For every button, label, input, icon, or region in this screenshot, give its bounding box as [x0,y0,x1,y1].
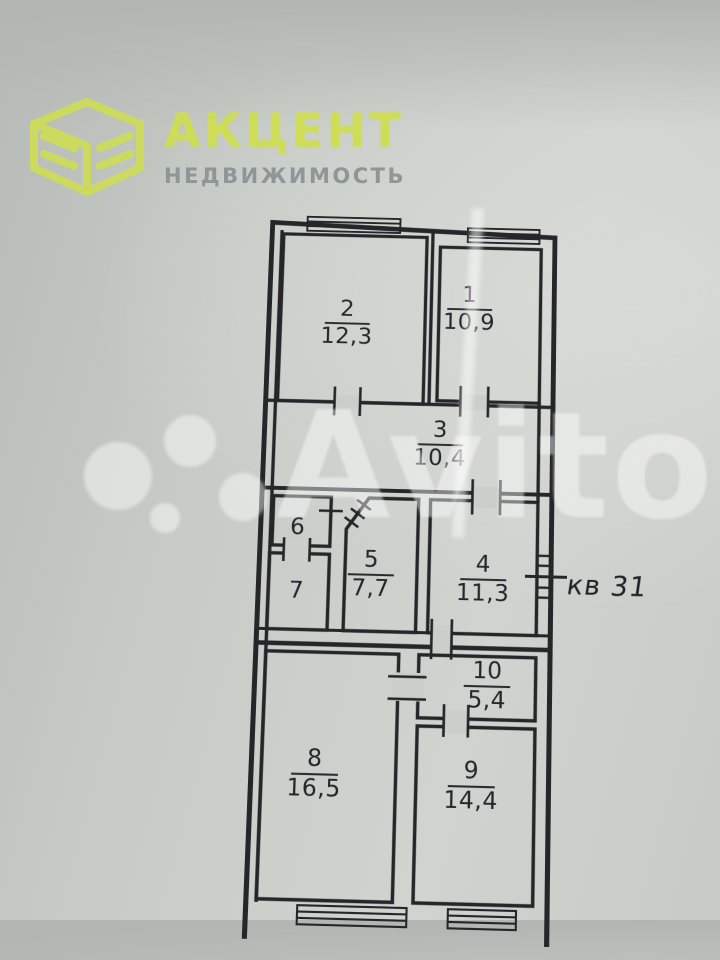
room-label-4: 4 11,3 [456,553,510,607]
room-label-8: 8 16,5 [286,747,342,803]
watermark-dot [84,442,152,510]
agency-name: АКЦЕНТ [164,108,406,155]
room-label-7: 7 [288,579,304,603]
scanned-floorplan-photo: АКЦЕНТ НЕДВИЖИМОСТЬ [0,0,720,920]
room-label-6: 6 [290,516,305,540]
agency-cube-icon [16,94,158,198]
apartment-number-label: кв 31 [565,570,650,603]
room-label-5: 5 7,7 [347,548,395,602]
watermark-dot [150,503,180,533]
agency-logo: АКЦЕНТ НЕДВИЖИМОСТЬ [16,94,406,198]
room-label-10: 10 5,4 [463,660,510,715]
agency-subtitle: НЕДВИЖИМОСТЬ [164,164,406,188]
room-label-9: 9 14,4 [443,759,498,815]
room-label-2: 2 12,3 [320,298,374,349]
watermark-dot [164,415,216,467]
